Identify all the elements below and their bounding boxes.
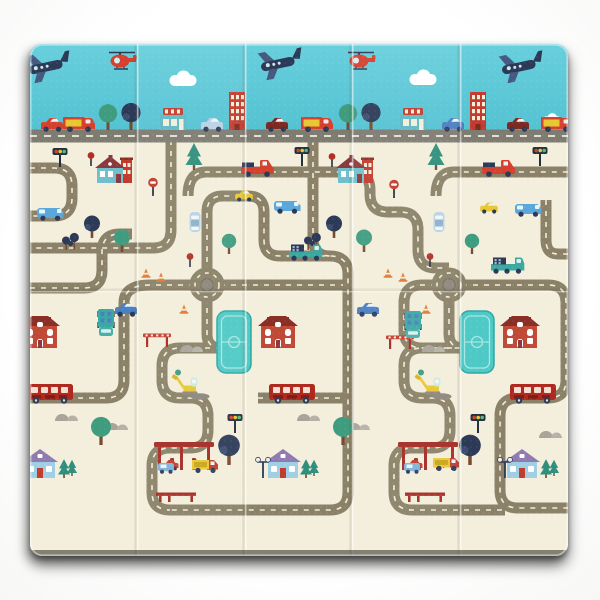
mat-panel: [352, 44, 460, 556]
fold-line: [457, 44, 461, 556]
fold-line: [349, 44, 353, 556]
mat-panel: [137, 44, 245, 556]
product-photo: [0, 0, 600, 600]
mat-print: [20, 44, 573, 556]
fold-line: [242, 44, 246, 556]
foam-texture: [30, 44, 568, 556]
fold-line: [134, 44, 138, 556]
crease-line: [30, 288, 568, 292]
play-mat: [0, 0, 600, 600]
